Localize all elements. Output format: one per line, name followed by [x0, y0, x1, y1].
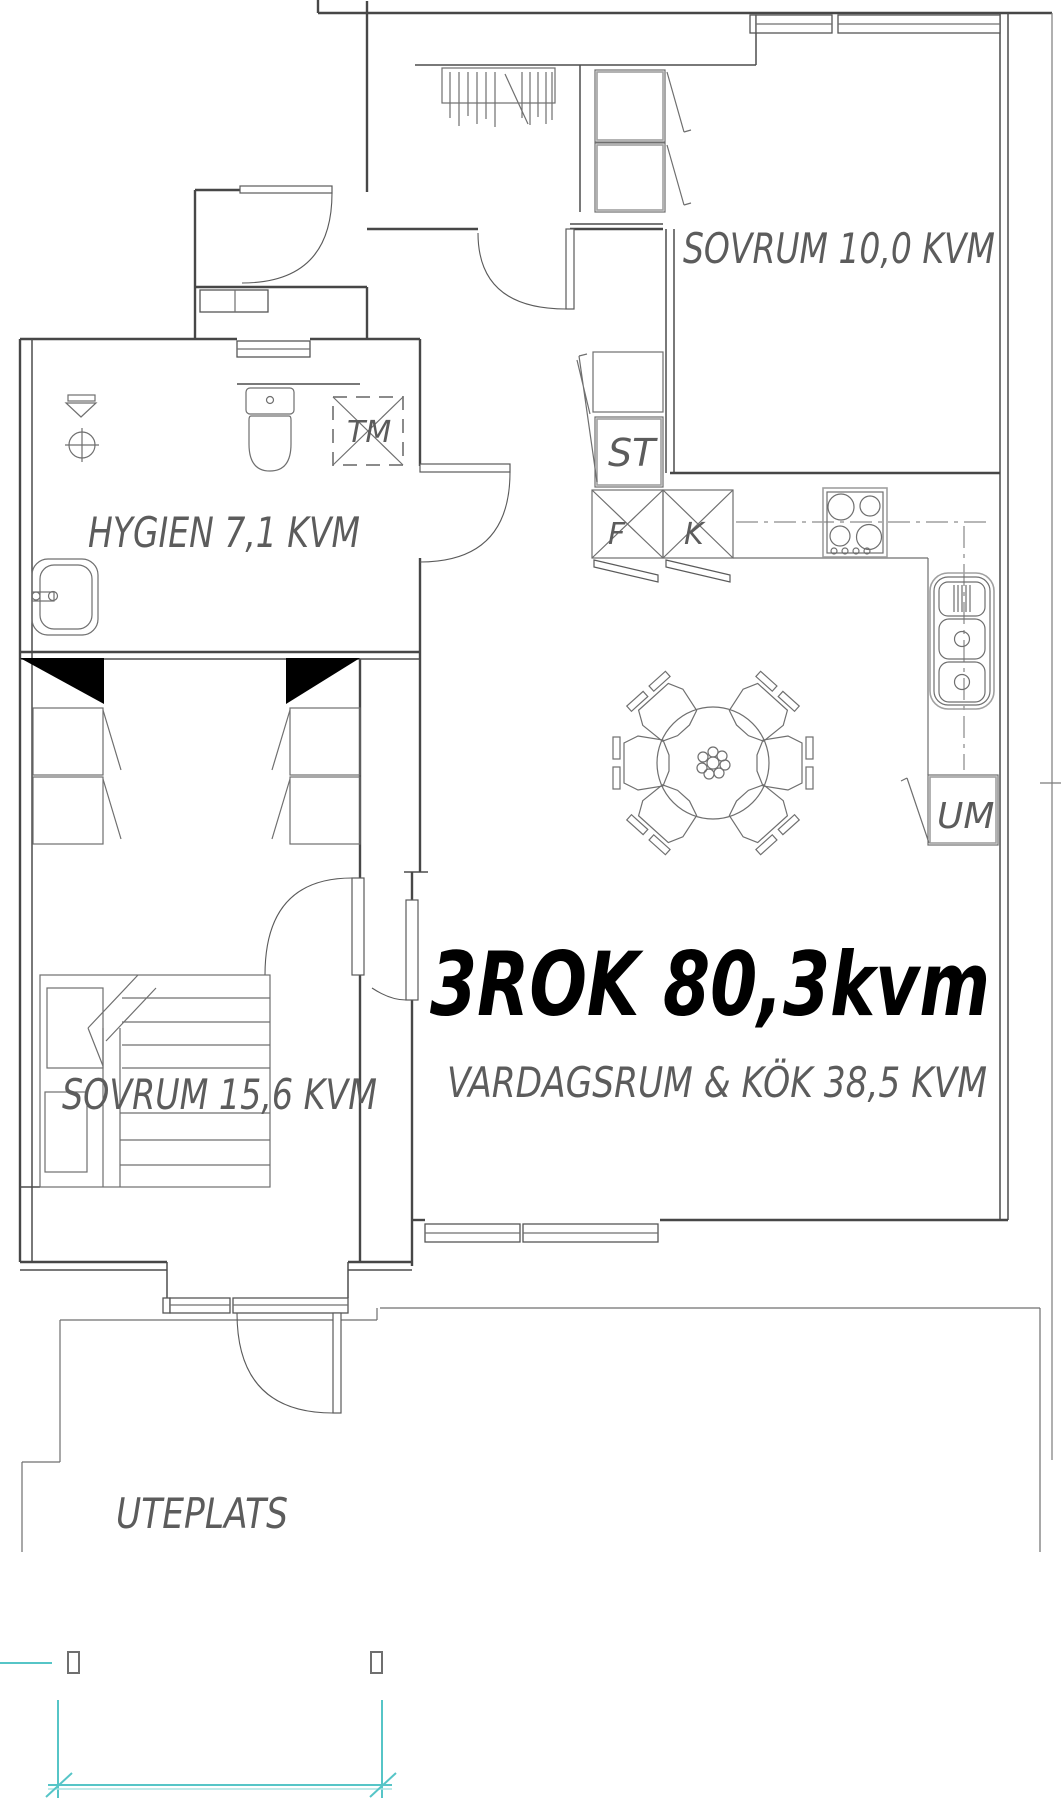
tall-cabinet [595, 70, 691, 212]
floor-drain-icon [65, 428, 99, 462]
bedroom2-door [265, 878, 364, 975]
countertop [733, 522, 992, 775]
wardrobe-cabinet [290, 777, 360, 844]
wardrobe-cabinet [290, 708, 360, 775]
floor-plan-drawing: SOVRUM 10,0 KVM HYGIEN 7,1 KVM 3ROK 80,3… [0, 0, 1061, 1817]
entry-door [240, 186, 332, 283]
living-west-door [372, 900, 418, 1000]
table-flowers-icon [697, 747, 730, 779]
label-fridge: F [608, 517, 626, 552]
site-boundary [0, 1652, 396, 1798]
room-label-patio: UTEPLATS [116, 1489, 288, 1538]
entry-storage [442, 68, 691, 212]
kitchen [577, 352, 998, 845]
plan-title: 3ROK 80,3kvm [430, 933, 990, 1036]
hall-living-door [420, 464, 510, 562]
fridge-open-door [594, 560, 658, 582]
room-label-bedroom1: SOVRUM 10,0 KVM [683, 224, 995, 273]
room-label-living-kitchen: VARDAGSRUM & KÖK 38,5 KVM [447, 1057, 987, 1107]
shower-icon [66, 395, 96, 417]
labels: SOVRUM 10,0 KVM HYGIEN 7,1 KVM 3ROK 80,3… [62, 224, 995, 1538]
window-top [750, 15, 1000, 33]
toilet-icon [246, 388, 294, 471]
window-entry [200, 290, 268, 312]
freezer-open-door [666, 560, 730, 582]
window-vestibule [163, 1298, 348, 1313]
room-label-bedroom2: SOVRUM 15,6 KVM [62, 1070, 377, 1119]
dining-area [613, 671, 813, 856]
label-oven: UM [937, 796, 994, 837]
dining-table-icon [657, 707, 769, 819]
post-icon [68, 1652, 79, 1673]
wardrobe-cabinet [33, 777, 103, 844]
bedroom1-door [478, 229, 574, 309]
window-living-south [425, 1224, 658, 1242]
shaft-wedge-right [286, 658, 360, 704]
post-icon [371, 1652, 382, 1673]
fridge-icon [592, 490, 663, 558]
washbasin-icon [32, 559, 98, 635]
coat-rack-icon [442, 68, 555, 127]
room-label-bathroom: HYGIEN 7,1 KVM [88, 508, 360, 557]
window-bathroom [237, 341, 310, 357]
label-washing-machine: TM [347, 415, 391, 450]
sink-icon [930, 573, 994, 709]
label-freezer: K [684, 517, 706, 552]
patio-door [237, 1313, 341, 1413]
wardrobe-cabinet [33, 708, 103, 775]
hall-wardrobes [20, 658, 360, 844]
label-cleaning-cabinet: ST [608, 431, 658, 475]
floor-plan: SOVRUM 10,0 KVM HYGIEN 7,1 KVM 3ROK 80,3… [0, 0, 1061, 1817]
